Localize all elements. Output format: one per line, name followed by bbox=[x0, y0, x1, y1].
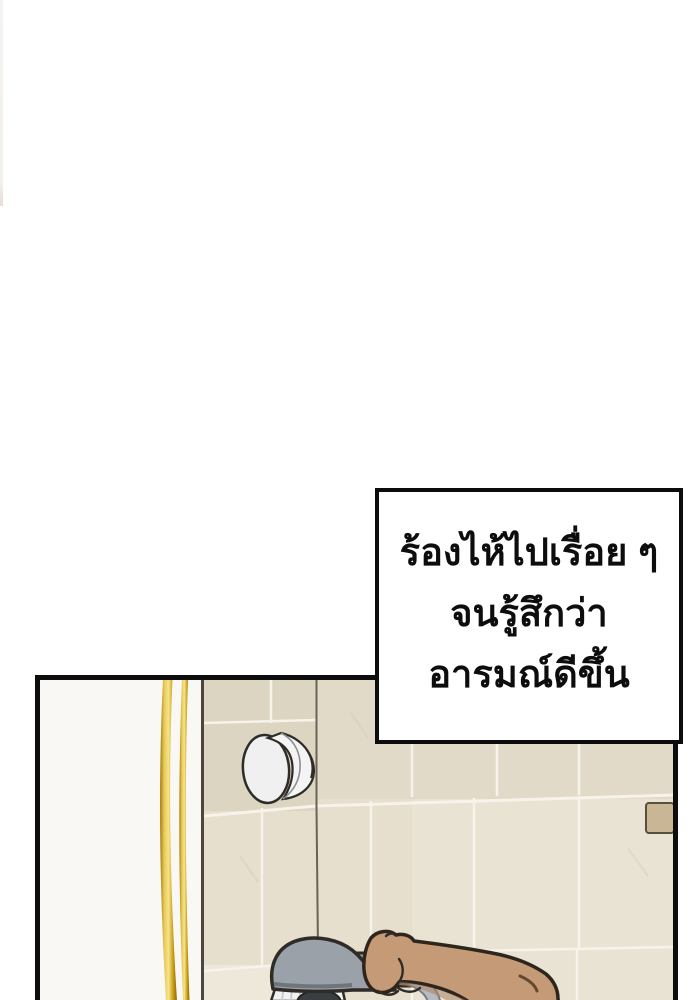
white-wall bbox=[39, 679, 204, 1000]
wall-fixture bbox=[646, 803, 674, 833]
narration-box: ร้องไห้ไปเรื่อย ๆ จนรู้สึกว่า อารมณ์ดีขึ… bbox=[375, 488, 683, 744]
narration-line-3: อารมณ์ดีขึ้น bbox=[428, 645, 630, 706]
narration-line-2: จนรู้สึกว่า bbox=[450, 584, 608, 645]
narration-line-1: ร้องไห้ไปเรื่อย ๆ bbox=[400, 523, 659, 584]
